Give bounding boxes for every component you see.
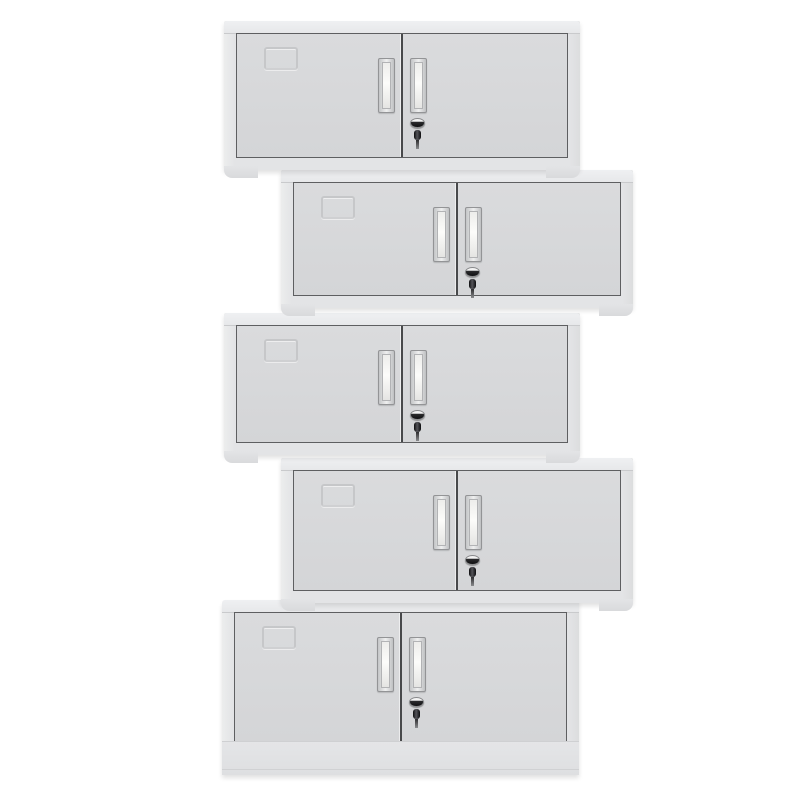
right-door-handle[interactable] [409, 637, 426, 692]
label-card-holder [264, 339, 298, 362]
left-door-handle[interactable] [433, 495, 450, 550]
left-foot [224, 451, 258, 463]
handle-recess [469, 211, 478, 258]
handle-recess [381, 641, 390, 688]
key-icon[interactable] [469, 567, 476, 577]
cam-lock[interactable] [409, 697, 424, 728]
door-panel-area [293, 470, 621, 591]
lock-cylinder-icon[interactable] [465, 555, 480, 565]
door-gap-divider [401, 34, 403, 157]
lock-cylinder-icon[interactable] [410, 118, 425, 128]
handle-recess [437, 211, 446, 258]
cabinet-5 [222, 600, 579, 775]
key-icon[interactable] [413, 709, 420, 719]
door-gap-divider [456, 183, 458, 295]
handle-recess [413, 641, 422, 688]
left-door-handle[interactable] [378, 350, 395, 405]
right-door-handle[interactable] [410, 58, 427, 113]
key-stem [416, 432, 419, 441]
label-card-holder [262, 626, 296, 649]
key-stem [471, 577, 474, 586]
door-gap-divider [400, 613, 402, 741]
key-stem [471, 289, 474, 298]
label-card-holder [321, 196, 355, 219]
plinth-base [222, 741, 579, 775]
door-gap-divider [456, 471, 458, 590]
right-foot [599, 599, 633, 611]
product-photo-canvas [0, 0, 800, 800]
left-door-handle[interactable] [377, 637, 394, 692]
left-door-handle[interactable] [433, 207, 450, 262]
cabinet-3 [224, 313, 580, 455]
cabinet-4 [281, 458, 633, 603]
right-foot [546, 451, 580, 463]
lock-cylinder-icon[interactable] [409, 697, 424, 707]
cabinet-2 [281, 170, 633, 308]
left-foot [281, 599, 315, 611]
key-stem [416, 140, 419, 149]
right-foot [546, 166, 580, 178]
cam-lock[interactable] [465, 555, 480, 586]
door-gap-divider [401, 326, 403, 442]
right-door-handle[interactable] [410, 350, 427, 405]
handle-recess [414, 62, 423, 109]
door-panel-area [234, 612, 567, 742]
door-panel-area [236, 33, 568, 158]
label-card-holder [321, 484, 355, 507]
cam-lock[interactable] [465, 267, 480, 298]
handle-recess [382, 62, 391, 109]
key-stem [415, 719, 418, 728]
handle-recess [437, 499, 446, 546]
handle-recess [414, 354, 423, 401]
cabinet-1 [224, 21, 580, 170]
cam-lock[interactable] [410, 410, 425, 441]
door-panel-area [293, 182, 621, 296]
key-icon[interactable] [414, 130, 421, 140]
right-door-handle[interactable] [465, 495, 482, 550]
right-foot [599, 304, 633, 316]
handle-recess [469, 499, 478, 546]
key-icon[interactable] [469, 279, 476, 289]
lock-cylinder-icon[interactable] [410, 410, 425, 420]
key-icon[interactable] [414, 422, 421, 432]
left-foot [281, 304, 315, 316]
lock-cylinder-icon[interactable] [465, 267, 480, 277]
right-door-handle[interactable] [465, 207, 482, 262]
handle-recess [382, 354, 391, 401]
left-door[interactable] [235, 613, 401, 741]
left-door-handle[interactable] [378, 58, 395, 113]
door-panel-area [236, 325, 568, 443]
cam-lock[interactable] [410, 118, 425, 149]
left-foot [224, 166, 258, 178]
label-card-holder [264, 47, 298, 70]
